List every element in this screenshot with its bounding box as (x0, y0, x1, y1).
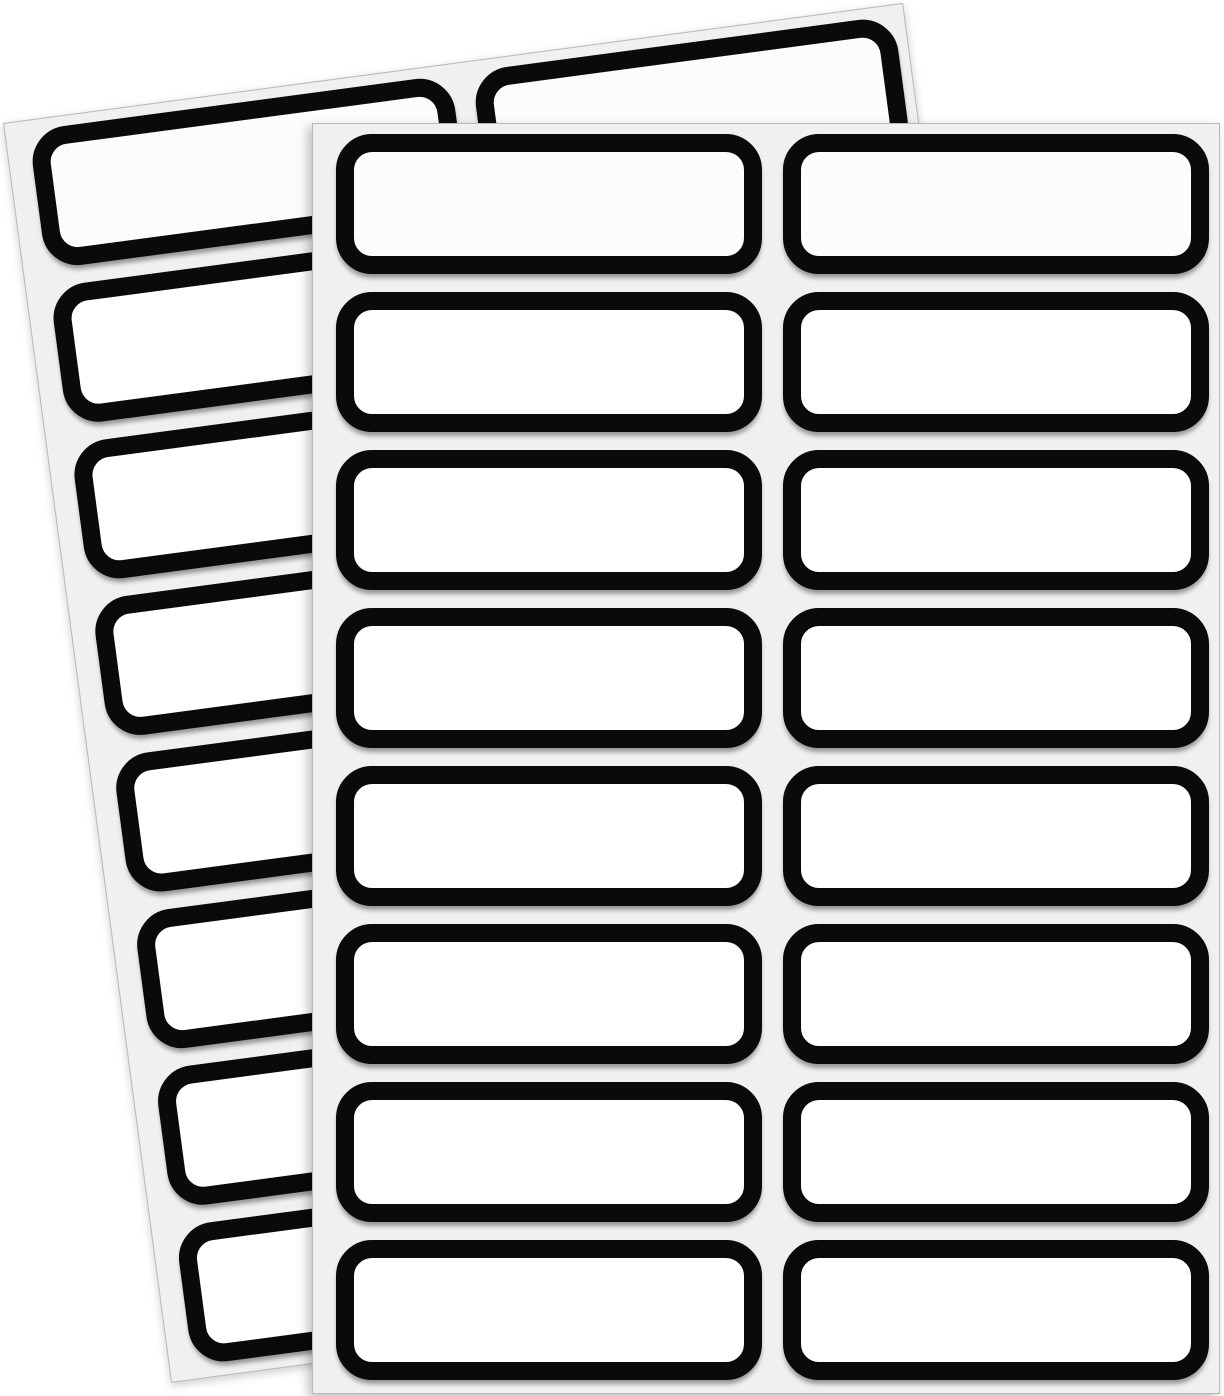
label-sticker (783, 1240, 1209, 1380)
label-sticker (783, 766, 1209, 906)
label-sticker (783, 134, 1209, 274)
label-sticker (336, 924, 762, 1064)
label-sticker (336, 1082, 762, 1222)
label-sticker (783, 608, 1209, 748)
label-sticker (336, 766, 762, 906)
label-sticker (783, 924, 1209, 1064)
label-sticker (783, 1082, 1209, 1222)
label-sticker (336, 450, 762, 590)
label-sticker (336, 608, 762, 748)
product-photo-canvas (0, 0, 1224, 1396)
label-sheet-front (312, 123, 1220, 1394)
label-sticker (336, 134, 762, 274)
label-sticker (336, 292, 762, 432)
label-sticker (783, 450, 1209, 590)
label-sticker (336, 1240, 762, 1380)
label-sticker (783, 292, 1209, 432)
